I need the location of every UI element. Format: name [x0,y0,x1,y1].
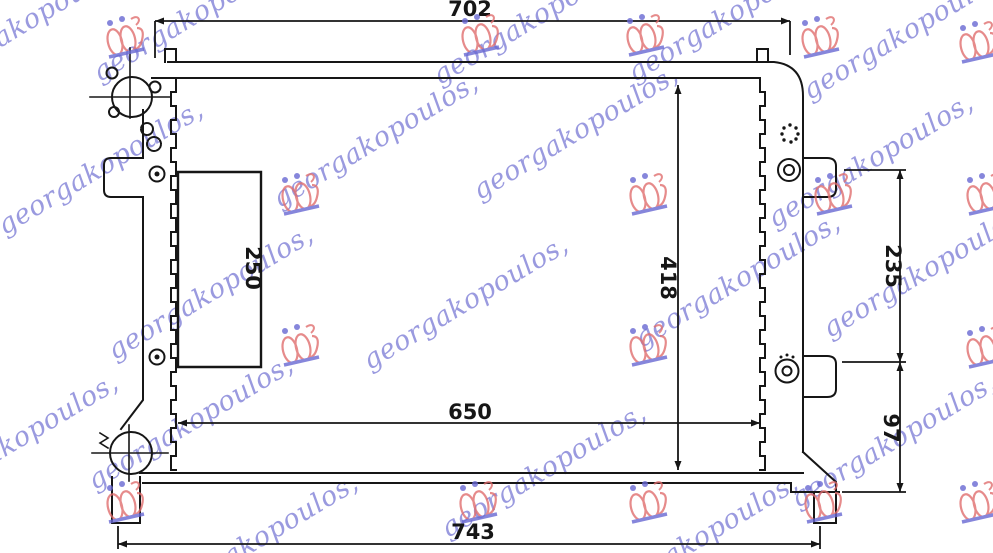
watermark-text: georgakopoulos, [267,67,484,214]
watermark-text: georgakopoulos, [0,367,124,514]
dim-label-bracket-span: 235 [881,244,905,288]
radiator-technical-drawing: georgakopoulos, georgakopoulos, georgako… [0,0,993,553]
dimension-650: 650 [178,400,760,427]
watermark-text: georgakopoulos, [147,467,364,553]
brand-logo-watermark [958,21,993,62]
top-left-post [165,49,176,62]
mount-hole-icon [778,159,800,181]
arrowhead [118,541,127,548]
dim-label-core-height: 418 [656,256,680,300]
brand-logo-watermark [958,481,993,522]
arrowhead [897,353,904,362]
arrowhead [811,541,820,548]
brand-logo-watermark [800,16,839,57]
right-lower-bracket [803,356,836,397]
drawing-canvas: georgakopoulos, georgakopoulos, georgako… [0,0,993,553]
dim-label-bottom-height: 97 [879,413,903,442]
drain-plug-icon [776,354,799,383]
brand-logo-watermark [628,173,667,214]
core-right-edge [760,78,765,470]
dimension-418: 418 [656,85,682,470]
watermark-text: georgakopoulos, [87,0,304,88]
brand-logo-watermark [628,481,667,522]
arrowhead [897,170,904,179]
filler-cap-tab [150,82,161,93]
arrowhead [781,18,790,25]
pipe-ridge-detail [100,433,108,448]
left-tank-edge-lower [121,197,143,429]
watermark-text: georgakopoulos, [357,229,574,376]
dim-label-top-width: 702 [448,0,492,21]
arrowhead [675,461,682,470]
brand-logo-watermark [965,173,993,214]
left-upper-screw-icon [150,167,165,182]
watermark-text-layer: georgakopoulos, georgakopoulos, georgako… [0,0,993,553]
brand-logo-watermark [965,326,993,367]
left-lower-screw-icon [150,350,165,365]
arrowhead [897,362,904,371]
dim-label-core-width: 650 [448,400,492,424]
vent-marks-icon [780,123,799,143]
dim-label-bottom-width: 743 [451,520,495,544]
brand-logo-watermark [280,324,319,365]
dim-label-side-panel-height: 250 [241,246,265,290]
watermark-text: georgakopoulos, [102,219,319,366]
arrowhead [751,420,760,427]
arrowhead [897,483,904,492]
brand-logo-watermark [105,481,144,522]
watermark-text: georgakopoulos, [587,467,804,553]
top-right-post [757,49,768,62]
